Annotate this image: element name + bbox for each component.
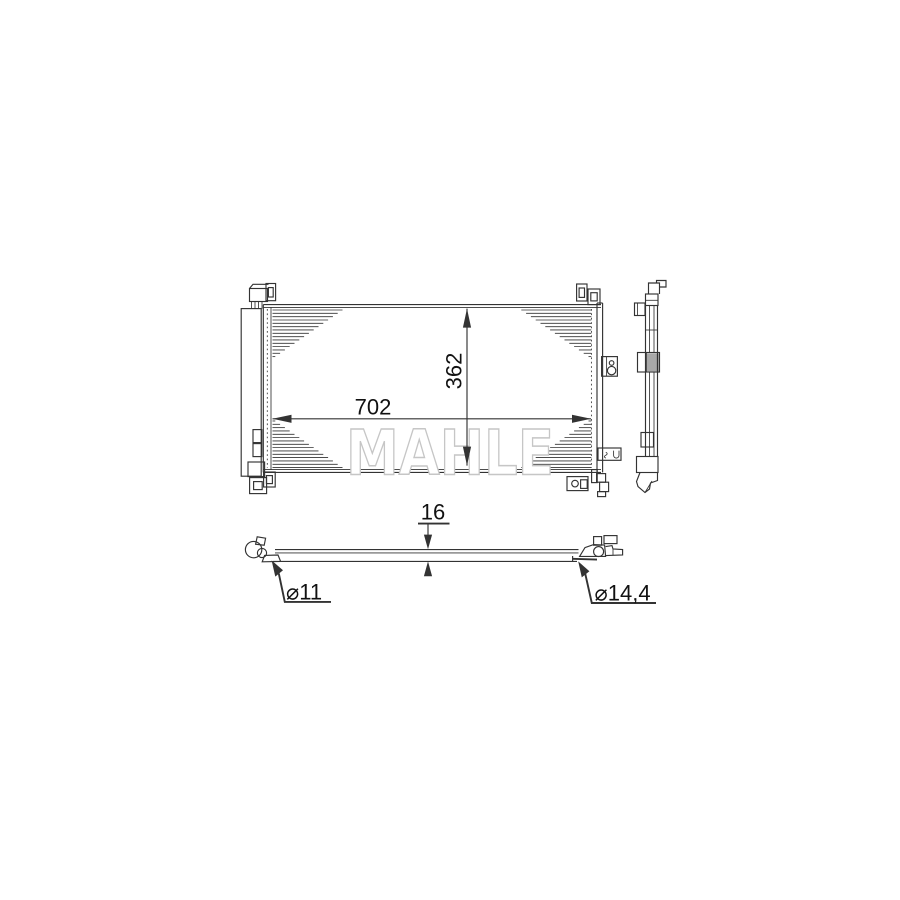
port-diameter-right-label: ⌀14,4 xyxy=(595,581,651,606)
condenser-technical-drawing: MAHLE 702 362 xyxy=(0,0,900,900)
dimension-width: 702 xyxy=(273,395,592,423)
leader-port-left: ⌀11 xyxy=(272,560,331,604)
bracket-right-middle xyxy=(602,357,618,377)
dimension-width-label: 702 xyxy=(355,395,392,420)
dimension-height-label: 362 xyxy=(442,353,467,390)
side-view xyxy=(635,281,667,493)
side-view-hatch xyxy=(648,353,658,371)
bottom-view: 16 ⌀11 ⌀14,4 xyxy=(245,500,656,606)
brand-watermark: MAHLE xyxy=(346,417,554,490)
port-diameter-left-label: ⌀11 xyxy=(286,580,322,605)
bracket-top-right xyxy=(577,284,600,305)
leader-port-right: ⌀14,4 xyxy=(578,561,656,605)
receiver-drier xyxy=(241,302,262,477)
bracket-top-left xyxy=(250,284,276,302)
bracket-right-lower xyxy=(598,448,621,460)
fitting-port-right xyxy=(573,536,623,562)
bracket-bottom-right xyxy=(567,470,609,497)
dimension-depth-label: 16 xyxy=(421,500,445,525)
dimension-depth: 16 xyxy=(418,500,450,577)
